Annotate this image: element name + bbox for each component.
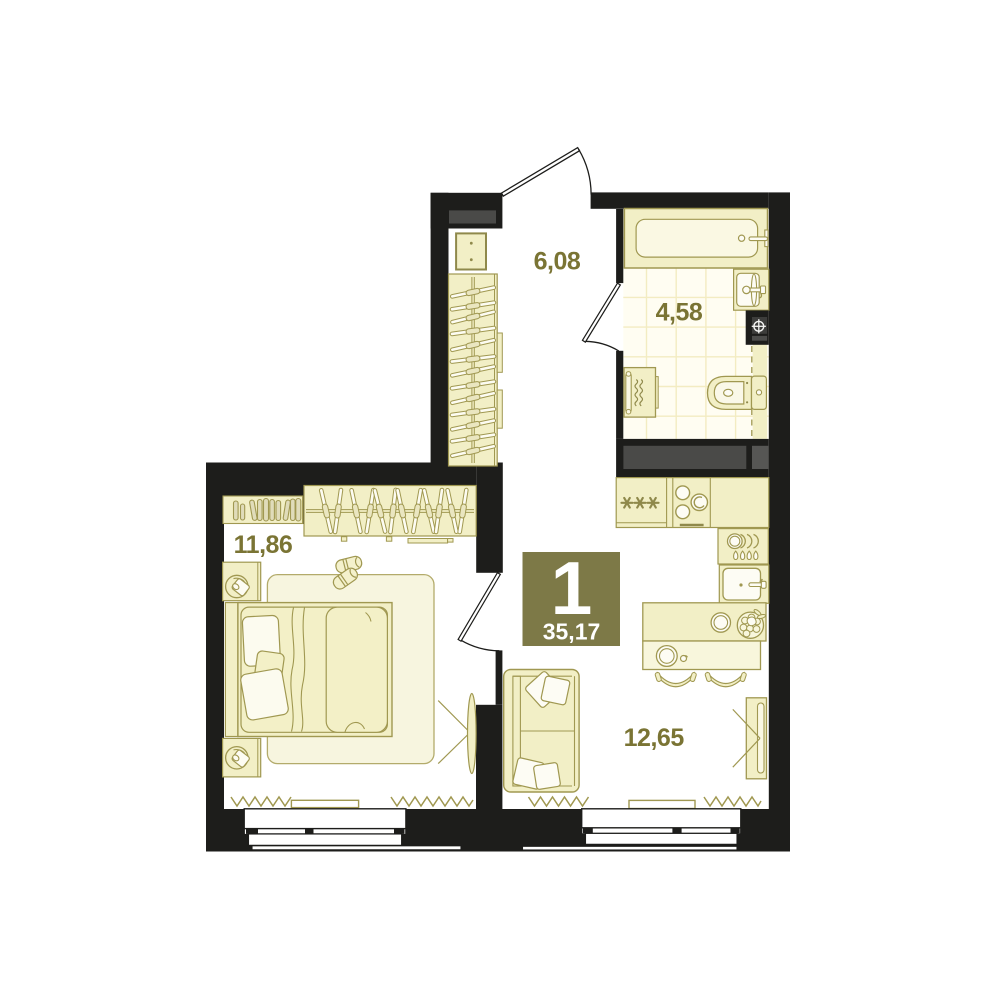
svg-text:6,08: 6,08 [534, 248, 581, 276]
svg-text:1: 1 [551, 546, 593, 630]
svg-text:4,58: 4,58 [656, 299, 703, 327]
svg-text:11,86: 11,86 [234, 531, 293, 559]
svg-text:12,65: 12,65 [624, 724, 685, 752]
svg-text:35,17: 35,17 [543, 619, 601, 645]
